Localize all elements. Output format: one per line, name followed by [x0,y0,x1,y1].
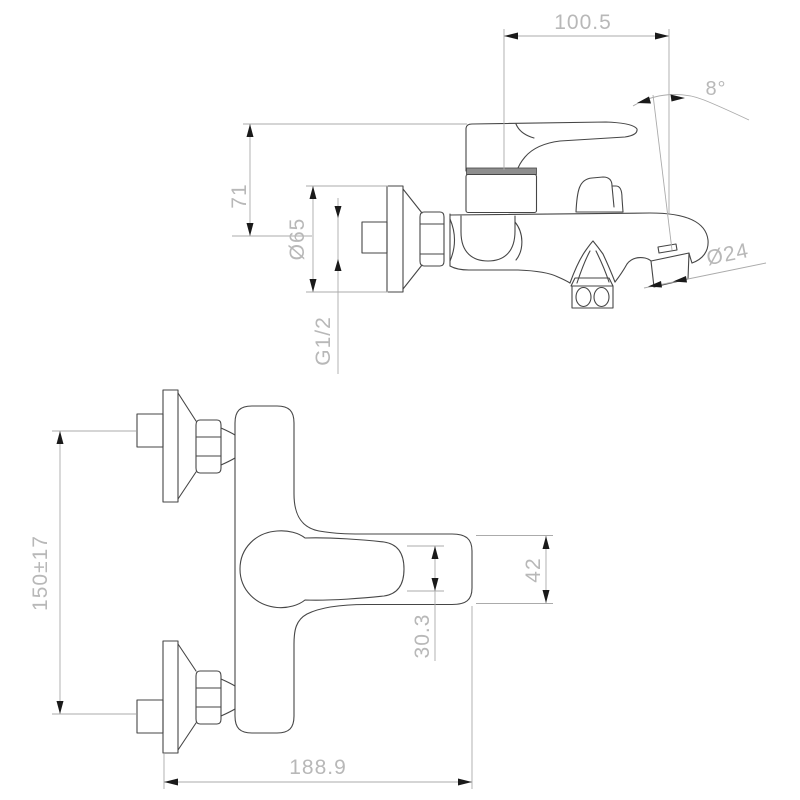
arrowhead [543,590,550,603]
dim-handle-height-lines [232,124,467,236]
dim-flange-diameter: Ø65 [286,186,388,292]
nut-body-connector-bottom [221,679,235,716]
cartridge-housing [466,175,537,213]
diverter-knob [576,177,623,212]
arrowhead [655,33,669,40]
escutcheon-cone-side [403,189,422,289]
dim-label-body-width: 42 [522,557,545,582]
dim-label-spout-reach: 100.5 [554,11,612,34]
arrowhead [310,279,317,292]
dim-spout-angle: 8° [633,78,749,250]
arrowhead [432,578,439,591]
hex-nut-side-facets [420,224,444,254]
body-tent-right [593,241,615,282]
arrowhead [247,223,254,236]
dim-inlet-thread: G1/2 [312,198,342,374]
hex-nut-bottom [196,671,221,724]
hex-nut-top-facets [196,437,221,456]
escutcheon-plate-top [163,390,178,502]
front-view: 150±17 30.3 42 188.9 [29,390,553,789]
dim-flange-diameter-lines [306,186,388,292]
dim-label-spout-angle: 8° [705,78,726,100]
handle-lever [466,122,637,171]
arrowhead [57,431,64,444]
lever-front-profile [240,531,404,608]
arrowhead [637,97,651,104]
dim-label-inlet-spacing: 150±17 [29,535,52,611]
arrowhead [164,779,178,786]
arrowhead [673,276,687,283]
dim-lever-thickness: 30.3 [407,546,444,661]
dim-spout-reach-lines [504,29,669,214]
side-view: 100.5 8° 71 Ø65 G1/2 [228,11,766,374]
dim-inlet-spacing-lines [52,431,136,714]
aerator-detail [658,244,677,253]
faucet-front-outline [137,390,472,753]
arrowhead [310,186,317,199]
arrowhead [671,95,686,102]
shower-hole-left [576,288,591,307]
shower-hole-right [594,288,609,307]
dim-label-lever-thickness: 30.3 [411,614,434,659]
arrowhead [335,206,342,218]
body-top-and-right [450,213,708,263]
escutcheon-plate-bottom [163,641,178,753]
dim-inlet-spacing: 150±17 [29,431,136,714]
body-and-arm-silhouette [235,406,472,733]
faucet-side-outline [362,122,708,308]
dim-label-inlet-thread: G1/2 [312,316,335,366]
arrowhead [458,779,472,786]
arrowhead [543,536,550,549]
arrowhead [57,701,64,714]
nut-body-connector-top [221,428,235,465]
dim-label-handle-height: 71 [228,183,251,208]
hex-nut-top [196,420,221,473]
arrowhead [648,281,662,288]
wall-pipe-stub-bottom [137,700,163,733]
diverter-knob-inner-line [612,186,614,207]
body-bottom-left [450,266,570,283]
hex-nut-side [420,212,444,266]
dim-spout-angle-arc [633,94,749,120]
cartridge-collar [467,168,537,175]
handle-thumb-curve [516,124,534,138]
escutcheon-cone-top [178,393,196,499]
escutcheon-cone-bottom [178,644,196,750]
dim-label-spout-diameter: Ø24 [704,239,750,270]
dim-handle-height: 71 [228,124,467,236]
faucet-technical-drawing: 100.5 8° 71 Ø65 G1/2 [0,0,800,800]
dim-spout-reach: 100.5 [504,11,669,214]
arrowhead [247,124,254,137]
wall-pipe-stub-side [362,222,387,253]
technical-drawing-page: 100.5 8° 71 Ø65 G1/2 [0,0,800,800]
valve-drum-arc [461,216,515,261]
dim-spout-diameter-line [644,263,766,288]
shower-outlet-body [572,286,613,308]
wall-pipe-stub-top [137,414,163,447]
body-coupling-arc [450,219,455,261]
arrowhead [432,546,439,559]
arrowhead [504,33,518,40]
valve-drum-inner-arc [515,222,522,260]
dim-label-flange-diameter: Ø65 [286,218,309,261]
dim-label-overall-depth: 188.9 [289,756,347,779]
body-tent-left [570,241,593,283]
dim-body-width: 42 [476,536,553,604]
hex-nut-bottom-facets [196,688,221,707]
body-bottom-right [615,258,651,282]
escutcheon-plate-side [387,186,403,292]
arrowhead [335,259,342,271]
